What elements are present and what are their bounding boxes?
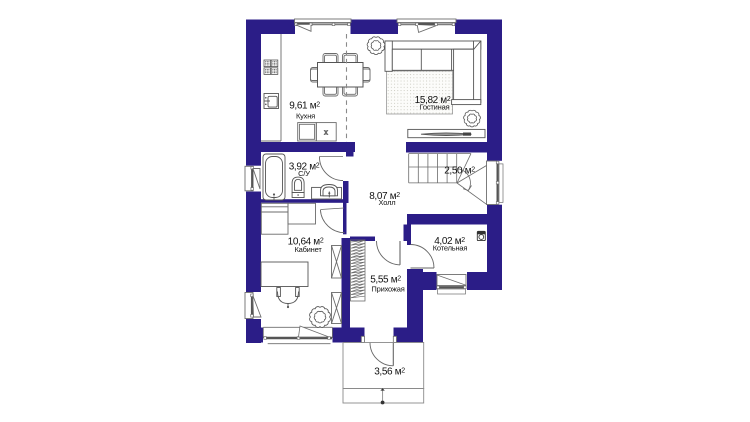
svg-text:3,56 м2: 3,56 м2 — [374, 367, 405, 378]
svg-text:x: x — [324, 130, 328, 137]
svg-text:Гостиная: Гостиная — [420, 103, 450, 112]
svg-text:9,61 м2: 9,61 м2 — [289, 101, 320, 112]
svg-text:С/У: С/У — [298, 169, 310, 178]
svg-text:Прихожая: Прихожая — [371, 285, 404, 294]
svg-text:Котельная: Котельная — [433, 244, 468, 253]
svg-text:Кухня: Кухня — [296, 112, 315, 121]
svg-text:Холл: Холл — [379, 198, 396, 207]
svg-text:2,50 м2: 2,50 м2 — [444, 166, 475, 177]
svg-text:Кабинет: Кабинет — [294, 245, 322, 254]
